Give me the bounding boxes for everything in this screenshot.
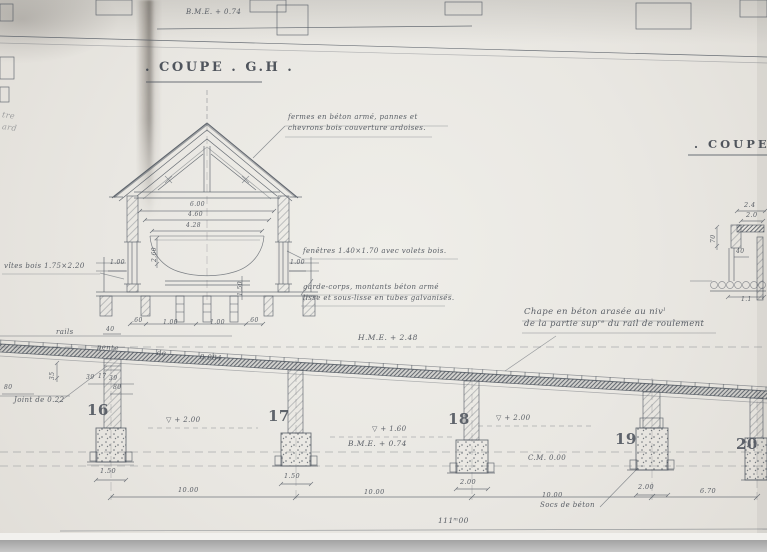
pier-16-width-dim: 1.50	[100, 468, 116, 475]
pier-17-width-dim: 1.50	[284, 473, 300, 480]
bme-level-label: B.M.E. + 0.74	[348, 440, 407, 448]
span-dim-1: 10.00	[178, 487, 199, 494]
right-section-title: . COUPE .	[694, 139, 767, 151]
level-plus2-right: ▽ + 2.00	[496, 415, 531, 422]
pier-18-number: 18	[448, 412, 470, 427]
level-plus160: ▽ + 1.60	[372, 426, 407, 433]
walls-and-windows	[124, 196, 292, 292]
detail-dim-base: 1.1	[741, 297, 752, 303]
section-width-dim-460: 4.60	[188, 212, 203, 218]
title-underlines	[146, 82, 767, 155]
right-wall-detail	[690, 209, 767, 300]
column-dim-17: 17	[98, 374, 106, 380]
detail-dim-20: 2.0	[746, 212, 758, 219]
cm-datum-label: C.M. 0.00	[528, 455, 566, 462]
pier-17	[272, 370, 318, 486]
total-length-dim: 111ᵐ00	[438, 517, 469, 525]
detail-dim-24: 2.4	[744, 202, 756, 209]
section-height-dim-260: 2.60	[152, 247, 158, 262]
pier-19-width-dim: 2.00	[638, 484, 654, 491]
pier-17-number: 17	[268, 409, 290, 424]
note-concrete-bases: Socs de béton	[540, 502, 595, 509]
drawing-sheet: B.M.E. + 0.74 . COUPE . G.H . . COUPE . …	[0, 0, 767, 552]
note-slope-word1: pente	[97, 344, 119, 352]
section-width-dim-428: 4.28	[186, 223, 201, 229]
spacing-dimension-line	[60, 494, 767, 531]
pier-20-number: 20	[736, 437, 758, 452]
column-dim-39b: 39	[109, 376, 117, 382]
quay-plan-band	[0, 0, 767, 102]
note-slope-value: 0.084	[200, 354, 222, 362]
main-section-title: . COUPE . G.H .	[145, 61, 294, 74]
note-screed-line2: de la partie supʳᵉ du rail de roulement	[524, 320, 704, 329]
hme-level-label: H.M.E. + 2.48	[358, 334, 418, 342]
pier-18-width-dim: 2.00	[460, 479, 476, 486]
note-roof-trusses-line2: chevrons bois couverture ardoises.	[288, 125, 426, 132]
level-plus2-left: ▽ + 2.00	[166, 417, 201, 424]
column-dim-80-right: 80	[113, 385, 121, 391]
note-guardrail-line1: garde-corps, montants béton armé	[303, 284, 439, 291]
pier-16-number: 16	[87, 403, 109, 418]
eave-dim-left: 1.00	[110, 260, 125, 266]
note-screed-line1: Chape en béton arasée au nivˡ	[524, 308, 666, 317]
pier-18	[447, 381, 495, 491]
column-dim-35: 35	[50, 372, 56, 380]
column-top-dim: 40	[106, 327, 114, 333]
base-row-dim-4: .60	[248, 318, 259, 324]
detail-dim-40: 40	[736, 249, 744, 255]
base-row-dim-2: 1.00	[163, 320, 178, 326]
end-span-dim: 6.70	[700, 488, 716, 495]
base-row-dim-3: 1.00	[210, 320, 225, 326]
note-guardrail-line2: lisse et sous-lisse en tubes galvanisés.	[303, 295, 454, 302]
column-dim-39a: 39	[86, 375, 94, 381]
span-dim-3: 10.00	[542, 492, 563, 499]
top-bme-level-label: B.M.E. + 0.74	[186, 9, 241, 16]
note-wood-door: vîtes bois 1.75×2.20	[4, 263, 85, 270]
detail-dim-70: 70	[711, 235, 717, 243]
column-dim-80-left: 80	[4, 385, 12, 391]
roof-and-truss	[109, 123, 302, 201]
note-joint: Joint de 0.22	[14, 397, 64, 404]
eave-dim-right: 1.00	[290, 260, 305, 266]
section-width-dim-600: 6.00	[190, 202, 205, 208]
span-dim-2: 10.00	[364, 489, 385, 496]
section-vert-dim-150: 1.50	[238, 281, 244, 296]
note-slope-word2: de	[157, 350, 167, 358]
note-windows: fenêtres 1.40×1.70 avec volets bois.	[303, 248, 447, 255]
pier-19-number: 19	[615, 432, 637, 447]
note-roof-trusses-line1: fermes en béton armé, pannes et	[288, 114, 418, 121]
base-row-dim-1: .60	[132, 318, 143, 324]
note-rails: rails	[56, 329, 74, 336]
margin-scribble-1: tre	[2, 111, 16, 121]
